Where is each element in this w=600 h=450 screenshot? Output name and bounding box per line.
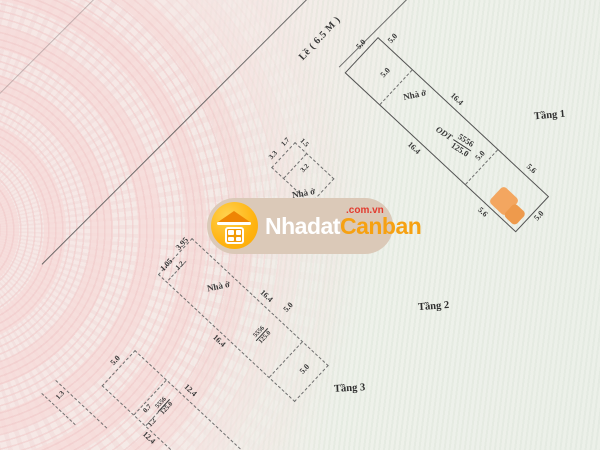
dim-front-inner: 5.0 bbox=[379, 66, 392, 79]
brand-domain: .com.vn bbox=[346, 205, 384, 216]
parcel-fraction-small: 5556 125.0 bbox=[147, 389, 176, 418]
brand-first: Nhadat bbox=[265, 213, 340, 240]
parcel-fraction-small: 5556 125.0 bbox=[245, 318, 274, 347]
window-pane bbox=[228, 230, 234, 235]
scanned-site-plan: Lề ( 6.5 M ) 5.0 5.0 5.0 Nhà ở 16.4 16.4… bbox=[0, 0, 600, 450]
house-label: Nhà ở bbox=[402, 88, 427, 102]
brand-second: Canban bbox=[340, 213, 421, 240]
house-label: Nhà ở bbox=[206, 280, 231, 294]
dim-rear-inner: 5.0 bbox=[474, 149, 487, 162]
dim-detail-d: 3.2 bbox=[299, 163, 310, 174]
parcel-annotation: ODT 5556 125.0 bbox=[431, 120, 477, 160]
house-window-icon bbox=[225, 227, 244, 244]
floor3-title: Tầng 3 bbox=[334, 382, 366, 395]
floor2-rear-partition-line bbox=[269, 342, 302, 378]
brand-wordmark: NhadatCanban bbox=[265, 198, 421, 254]
house-eave-icon bbox=[217, 222, 251, 225]
window-pane bbox=[236, 237, 242, 242]
dim-rear: 5.0 bbox=[298, 363, 311, 376]
window-pane bbox=[228, 237, 234, 242]
land-use-code: ODT bbox=[434, 124, 454, 142]
window-pane bbox=[236, 230, 242, 235]
dim-seg-b: 1.2 bbox=[147, 417, 158, 428]
watermark-badge: NhadatCanban .com.vn bbox=[207, 198, 393, 254]
floor2-title: Tầng 2 bbox=[418, 300, 450, 313]
house-roof-icon bbox=[218, 211, 250, 222]
logo-circle bbox=[211, 202, 258, 249]
